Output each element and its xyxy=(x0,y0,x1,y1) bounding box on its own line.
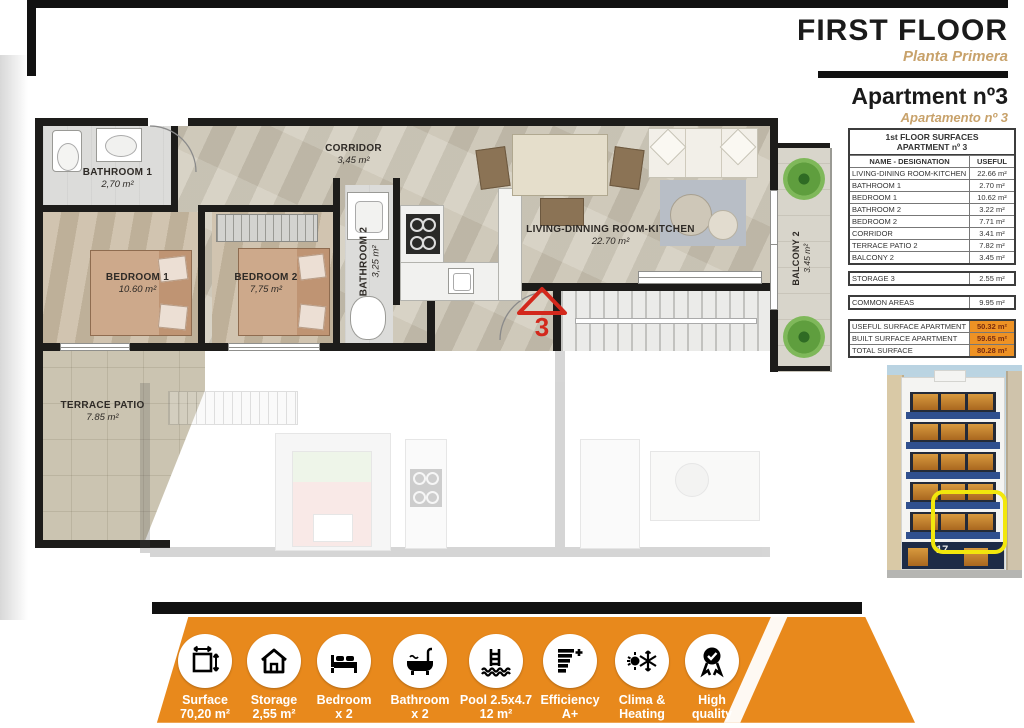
balcony-awning xyxy=(906,472,1000,479)
bathtub-icon xyxy=(403,644,437,678)
adjacent-apartment-faded xyxy=(130,351,790,598)
bedroom2-window xyxy=(228,343,320,351)
wall-bathroom1-bottom xyxy=(43,205,178,212)
sofa xyxy=(648,128,758,178)
floorplan-sheet: { "header": { "title": "FIRST FLOOR", "s… xyxy=(0,0,1024,728)
apartment-highlight-box xyxy=(931,490,1007,554)
feature-bathroom: Bathroomx 2 xyxy=(377,634,463,721)
bed-icon xyxy=(327,644,361,678)
energy-efficiency-icon xyxy=(553,644,587,678)
summary-value: 80.28 m² xyxy=(970,345,1014,356)
storage-value: 2.55 m² xyxy=(970,273,1014,284)
summary-name: BUILT SURFACE APARTMENT xyxy=(850,333,970,344)
row-name: TERRACE PATIO 2 xyxy=(850,240,970,251)
building-photo: 17 xyxy=(887,365,1022,578)
surfaces-title: 1st FLOOR SURFACES APARTMENT nº 3 xyxy=(850,130,1014,155)
row-value: 3.22 m² xyxy=(970,204,1014,215)
summary-name: USEFUL SURFACE APARTMENT xyxy=(850,321,970,332)
common-areas-value: 9.95 m² xyxy=(970,297,1014,308)
feature-bedroom: Bedroomx 2 xyxy=(301,634,387,721)
balcony-plant-top xyxy=(783,158,825,200)
surface-measure-icon xyxy=(189,645,221,677)
bedroom2-label: BEDROOM 2 7,75 m² xyxy=(205,272,327,295)
building-floor xyxy=(910,392,996,412)
bedroom1-label: BEDROOM 1 10.60 m² xyxy=(75,272,200,295)
dining-table xyxy=(512,134,608,196)
bathroom2-label: BATHROOM 2 3,25 m² xyxy=(359,207,382,317)
header-divider xyxy=(818,71,1008,78)
table-row: LIVING-DINING ROOM-KITCHEN22.66 m² xyxy=(850,167,1014,179)
bathroom1-label: BATHROOM 1 2,70 m² xyxy=(55,167,180,190)
kitchen-sink xyxy=(448,268,474,294)
balcony-stub-top xyxy=(778,143,830,148)
row-name: BALCONY 2 xyxy=(850,252,970,263)
living-window xyxy=(638,271,762,284)
row-name: BEDROOM 2 xyxy=(850,216,970,227)
toilet xyxy=(52,130,82,172)
row-name: CORRIDOR xyxy=(850,228,970,239)
storage-box: STORAGE 32.55 m² xyxy=(848,271,1016,286)
row-value: 3.41 m² xyxy=(970,228,1014,239)
sidewalk xyxy=(887,570,1022,578)
sink xyxy=(96,128,142,162)
neighbor-building-right xyxy=(1006,371,1022,570)
climate-icon xyxy=(625,644,659,678)
table-row: BEDROOM 27.71 m² xyxy=(850,215,1014,227)
dining-chair-right xyxy=(609,146,644,190)
footer-divider-bar xyxy=(152,602,862,614)
unit-number: 3 xyxy=(524,312,560,343)
common-areas-box: COMMON AREAS9.95 m² xyxy=(848,295,1016,310)
row-value: 10.62 m² xyxy=(970,192,1014,203)
summary-value: 50.32 m² xyxy=(970,321,1014,332)
table-row: BATHROOM 12.70 m² xyxy=(850,179,1014,191)
row-value: 7.71 m² xyxy=(970,216,1014,227)
table-row: BALCONY 23.45 m² xyxy=(850,251,1014,263)
stove xyxy=(406,214,440,254)
dining-chair-bottom xyxy=(540,198,584,226)
roof-box xyxy=(934,370,966,382)
building-floor xyxy=(910,422,996,442)
balcony-awning xyxy=(906,442,1000,449)
table-row: BEDROOM 110.62 m² xyxy=(850,191,1014,203)
table-row: CORRIDOR3.41 m² xyxy=(850,227,1014,239)
summary-name: TOTAL SURFACE xyxy=(850,345,970,356)
col-name-designation: NAME - DESIGNATION xyxy=(850,156,970,167)
storage-name: STORAGE 3 xyxy=(850,273,970,284)
dining-chair-left xyxy=(475,146,510,190)
balcony2-label: BALCONY 2 3.45 m² xyxy=(791,211,812,306)
row-value: 22.66 m² xyxy=(970,168,1014,179)
features-banner: Surface70,20 m² Storage2,55 m² Bedroomx … xyxy=(150,617,915,726)
summary-value: 59.65 m² xyxy=(970,333,1014,344)
row-name: BATHROOM 2 xyxy=(850,204,970,215)
balcony-door-window xyxy=(770,190,778,310)
summary-box: USEFUL SURFACE APARTMENT50.32 m² BUILT S… xyxy=(848,319,1016,358)
storage-house-icon xyxy=(258,645,290,677)
corridor-label: CORRIDOR 3,45 m² xyxy=(296,143,411,166)
summary-row: TOTAL SURFACE80.28 m² xyxy=(850,344,1014,356)
row-value: 3.45 m² xyxy=(970,252,1014,263)
surfaces-title-line2: APARTMENT nº 3 xyxy=(850,142,1014,152)
common-areas-name: COMMON AREAS xyxy=(850,297,970,308)
row-name: BEDROOM 1 xyxy=(850,192,970,203)
surfaces-table: 1st FLOOR SURFACES APARTMENT nº 3 NAME -… xyxy=(848,128,1016,358)
balcony-awning xyxy=(906,412,1000,419)
staircase-rail xyxy=(575,318,757,324)
terrace-label: TERRACE PATIO 7.85 m² xyxy=(40,400,165,423)
table-row: TERRACE PATIO 27.82 m² xyxy=(850,239,1014,251)
quality-award-icon xyxy=(695,644,729,678)
summary-row: BUILT SURFACE APARTMENT59.65 m² xyxy=(850,332,1014,344)
wall-left xyxy=(35,118,43,548)
wall-bedroom2-top xyxy=(198,205,338,212)
bedroom2-wardrobe xyxy=(216,214,318,242)
row-value: 7.82 m² xyxy=(970,240,1014,251)
bedroom1-window xyxy=(60,343,130,351)
wall-bedroom2-right xyxy=(333,178,340,351)
row-value: 2.70 m² xyxy=(970,180,1014,191)
pool-ladder-icon xyxy=(479,644,513,678)
surfaces-main-box: 1st FLOOR SURFACES APARTMENT nº 3 NAME -… xyxy=(848,128,1016,265)
living-label: LIVING-DINNING ROOM-KITCHEN 22.70 m² xyxy=(508,224,713,247)
table-row: BATHROOM 23.22 m² xyxy=(850,203,1014,215)
feature-quality: Highquality xyxy=(669,634,755,721)
building-floor xyxy=(910,452,996,472)
surfaces-header-row: NAME - DESIGNATION USEFUL xyxy=(850,155,1014,167)
floor-plan: 3 BATHROOM 1 2,70 m² BEDROOM 1 10.60 m² … xyxy=(0,0,840,600)
wall-bathroom2-right xyxy=(393,178,400,305)
row-name: LIVING-DINING ROOM-KITCHEN xyxy=(850,168,970,179)
col-useful: USEFUL xyxy=(970,156,1014,167)
surfaces-title-line1: 1st FLOOR SURFACES xyxy=(850,132,1014,142)
summary-row: USEFUL SURFACE APARTMENT50.32 m² xyxy=(850,321,1014,332)
row-name: BATHROOM 1 xyxy=(850,180,970,191)
